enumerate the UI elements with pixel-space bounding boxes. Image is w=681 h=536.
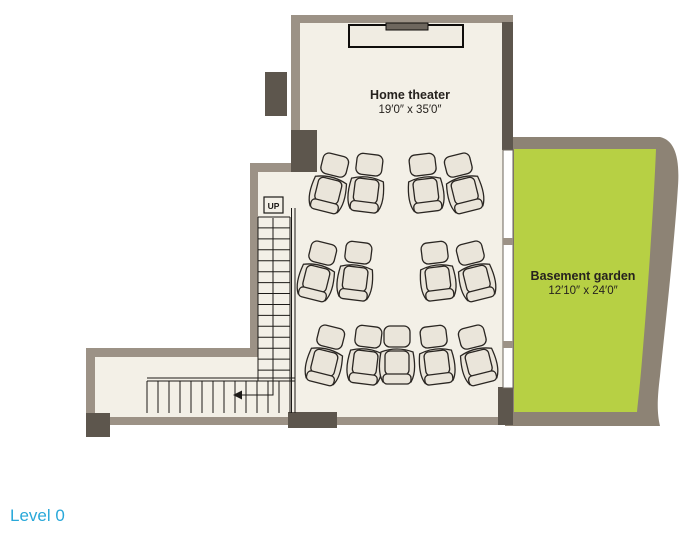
basement-garden-dimensions: 12′10″ x 24′0″ (548, 285, 617, 297)
floorplan-page: UP Home theater 19′0″ x 35′0″ Basement g… (0, 0, 681, 536)
window-strip (503, 150, 513, 388)
level-label[interactable]: Level 0 (10, 506, 65, 525)
basement-garden-name: Basement garden (531, 269, 636, 283)
up-label: UP (264, 197, 283, 213)
home-theater-dimensions: 19′0″ x 35′0″ (379, 104, 442, 116)
speaker-bar-icon (386, 23, 428, 30)
theater-seat (379, 326, 414, 384)
home-theater-name: Home theater (370, 88, 450, 102)
floorplan-canvas: UP Home theater 19′0″ x 35′0″ Basement g… (0, 0, 681, 536)
up-label-text: UP (268, 201, 280, 211)
